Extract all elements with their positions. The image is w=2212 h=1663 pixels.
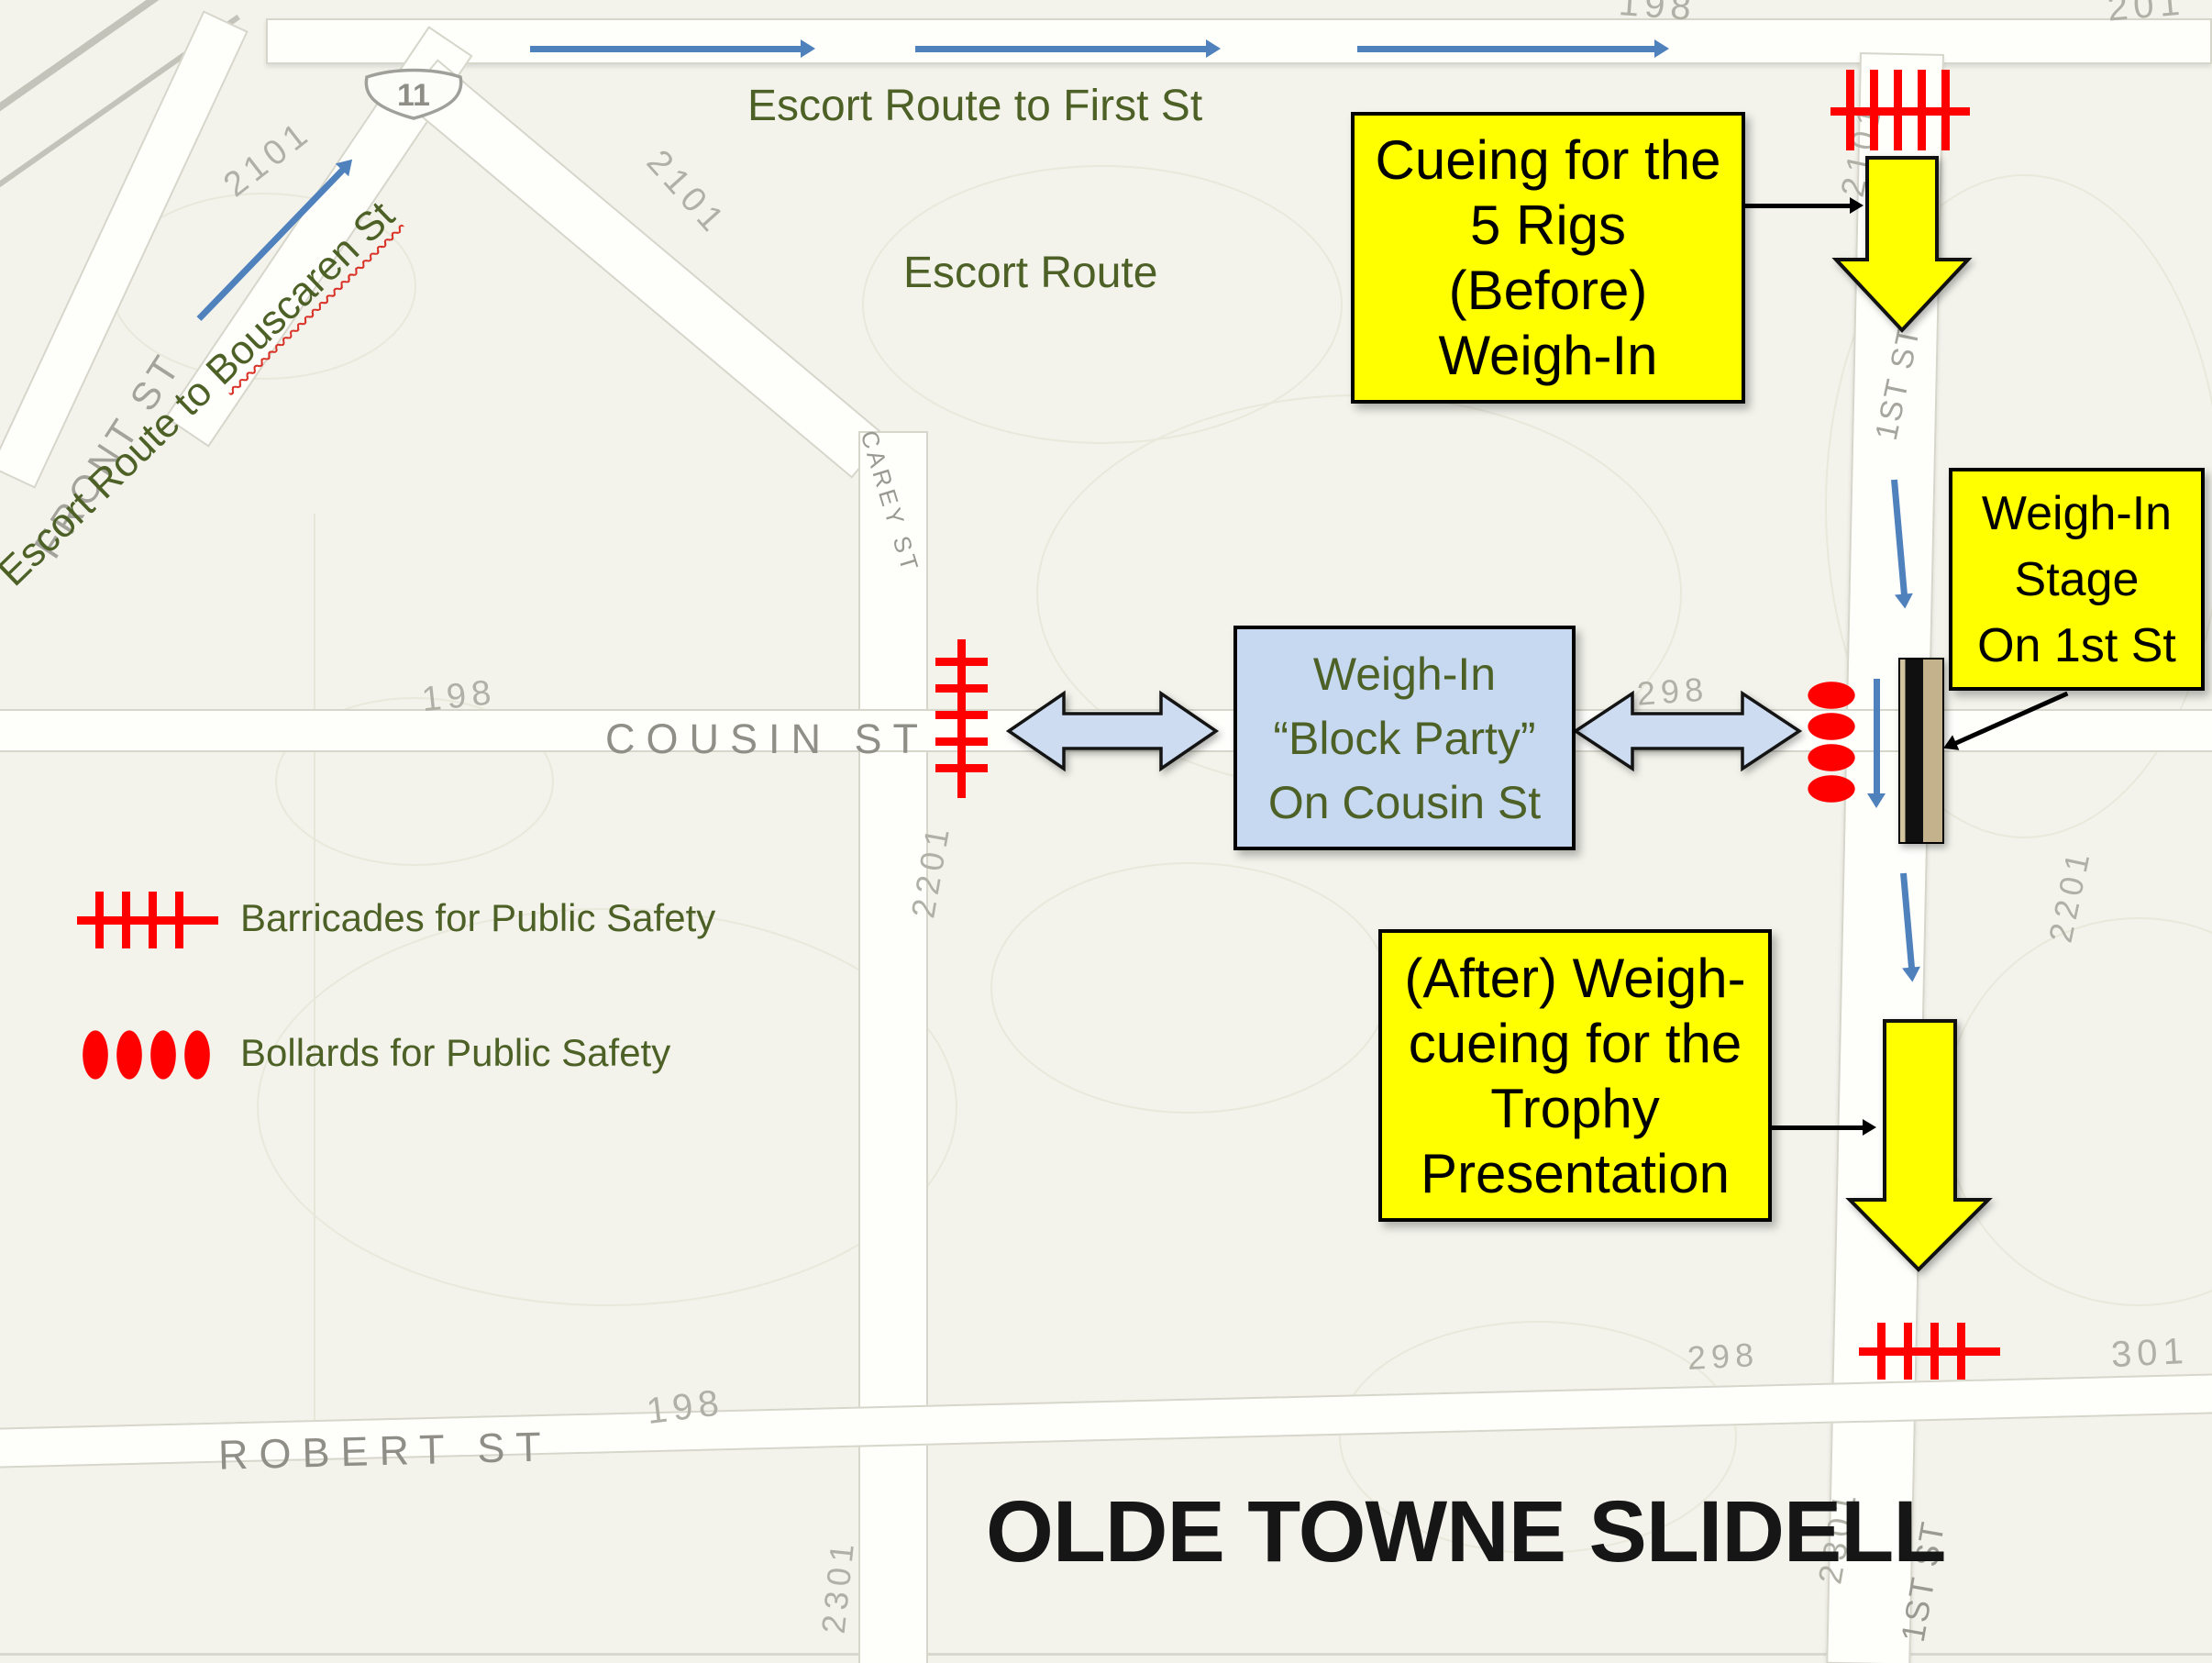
bollards-icon-first-st (1808, 680, 1855, 804)
yellow-flow-arrow-south (1847, 1018, 1992, 1272)
street-label-robert-st: ROBERT ST (217, 1423, 552, 1480)
block-number-2101-nw: 2101 (216, 113, 319, 205)
callout-after-trophy: (After) Weigh- cueing for the Trophy Pre… (1378, 929, 1772, 1222)
barricade-icon-first-st-bottom (1859, 1323, 2000, 1380)
bollards-icon (79, 1029, 215, 1081)
route-label-escort-route: Escort Route (903, 248, 1157, 298)
double-arrow-west-icon (1007, 691, 1218, 771)
escort-route-arrow-2 (915, 46, 1207, 52)
barricade-icon-first-st-top (1830, 70, 1970, 150)
legend-label-barricades: Barricades for Public Safety (240, 896, 715, 940)
barricade-icon (77, 892, 218, 948)
block-number-298-robert: 298 (1687, 1336, 1760, 1378)
block-number-198-cousin: 198 (420, 673, 498, 720)
page-title: OLDE TOWNE SLIDELL (986, 1482, 1945, 1582)
escort-route-arrow-1 (530, 46, 802, 52)
map-canvas: 11 FRONT ST COUSIN ST CAREY ST ROBERT ST… (0, 0, 2212, 1663)
weigh-in-stage-marker (1898, 658, 1944, 844)
contour-line (257, 908, 957, 1306)
contour-line (990, 862, 1388, 1114)
connector-arrow-cueing (1745, 204, 1851, 208)
callout-block-party: Weigh-In “Block Party” On Cousin St (1233, 626, 1576, 850)
double-arrow-east-icon (1574, 691, 1801, 771)
yellow-flow-arrow-north (1833, 155, 1971, 333)
street-label-cousin-st: COUSIN ST (605, 715, 929, 763)
block-boundary-line (314, 514, 315, 1431)
block-number-301-robert: 301 (2110, 1331, 2190, 1376)
escort-route-arrow-3 (1357, 46, 1655, 52)
route-number: 11 (397, 78, 430, 113)
block-number-2101-mid: 2101 (638, 143, 735, 243)
callout-weigh-in-stage: Weigh-In Stage On 1st St (1949, 468, 2205, 691)
callout-cueing-before: Cueing for the 5 Rigs (Before) Weigh-In (1351, 112, 1745, 404)
us-highway-11-shield: 11 (358, 66, 470, 121)
connector-arrow-after (1772, 1125, 1864, 1130)
road-carey-st (858, 431, 928, 1663)
block-number-2301-carey: 2301 (814, 1536, 863, 1635)
legend-label-bollards: Bollards for Public Safety (240, 1031, 670, 1075)
barricade-icon-cousin-st (935, 639, 988, 798)
first-st-flow-arrow-2 (1874, 679, 1880, 794)
route-label-to-first-st: Escort Route to First St (747, 81, 1202, 131)
